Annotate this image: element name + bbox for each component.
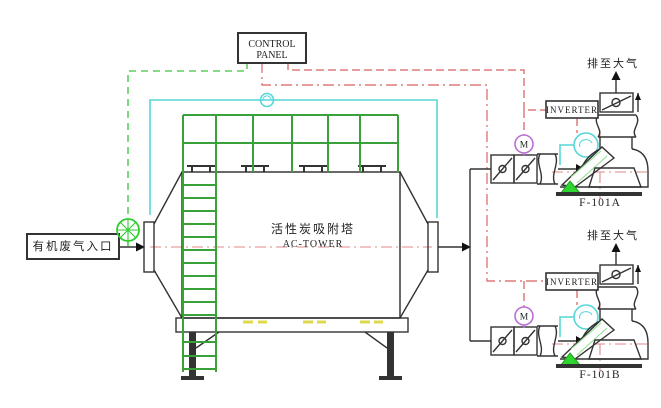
fan-unit-b: INVERTER M 排至大气 F-101B — [491, 228, 648, 381]
diagram-canvas: CONTROL PANEL 有机废气入口 活性炭吸附塔 AC-TOWER — [0, 0, 661, 408]
ladder-rails — [183, 115, 216, 372]
fan-b-tag: F-101B — [579, 369, 620, 381]
tower-name-cn: 活性炭吸附塔 — [271, 222, 355, 236]
pid-diagram: CONTROL PANEL 有机废气入口 活性炭吸附塔 AC-TOWER — [0, 0, 661, 408]
fan-unit-a: INVERTER M 排至大气 F-101A — [491, 56, 648, 209]
support-braces — [196, 332, 387, 348]
outlet-header — [438, 169, 491, 341]
green-signal-line — [128, 62, 247, 219]
header-pipe — [470, 169, 491, 341]
control-panel: CONTROL PANEL — [238, 33, 306, 63]
cyan-signal-line — [150, 100, 437, 218]
motor-b-label: M — [520, 313, 529, 323]
inverter-a-label: INVERTER — [546, 105, 598, 115]
red-signal-inverter-a — [288, 62, 546, 110]
exhaust-a-label: 排至大气 — [587, 56, 639, 70]
control-panel-label-1: CONTROL — [248, 39, 295, 50]
motor-a-label: M — [520, 141, 529, 151]
exhaust-b-label: 排至大气 — [587, 228, 639, 242]
inlet-control-valve — [117, 219, 139, 246]
tower-name-en: AC-TOWER — [283, 239, 344, 250]
ladder-rungs — [183, 185, 216, 369]
inlet-section: 有机废气入口 — [27, 219, 145, 259]
inverter-b-label: INVERTER — [546, 277, 598, 287]
support-leg-right — [387, 332, 394, 376]
inlet-label: 有机废气入口 — [33, 239, 114, 253]
control-panel-label-2: PANEL — [256, 50, 287, 61]
fan-a-tag: F-101A — [579, 197, 621, 209]
